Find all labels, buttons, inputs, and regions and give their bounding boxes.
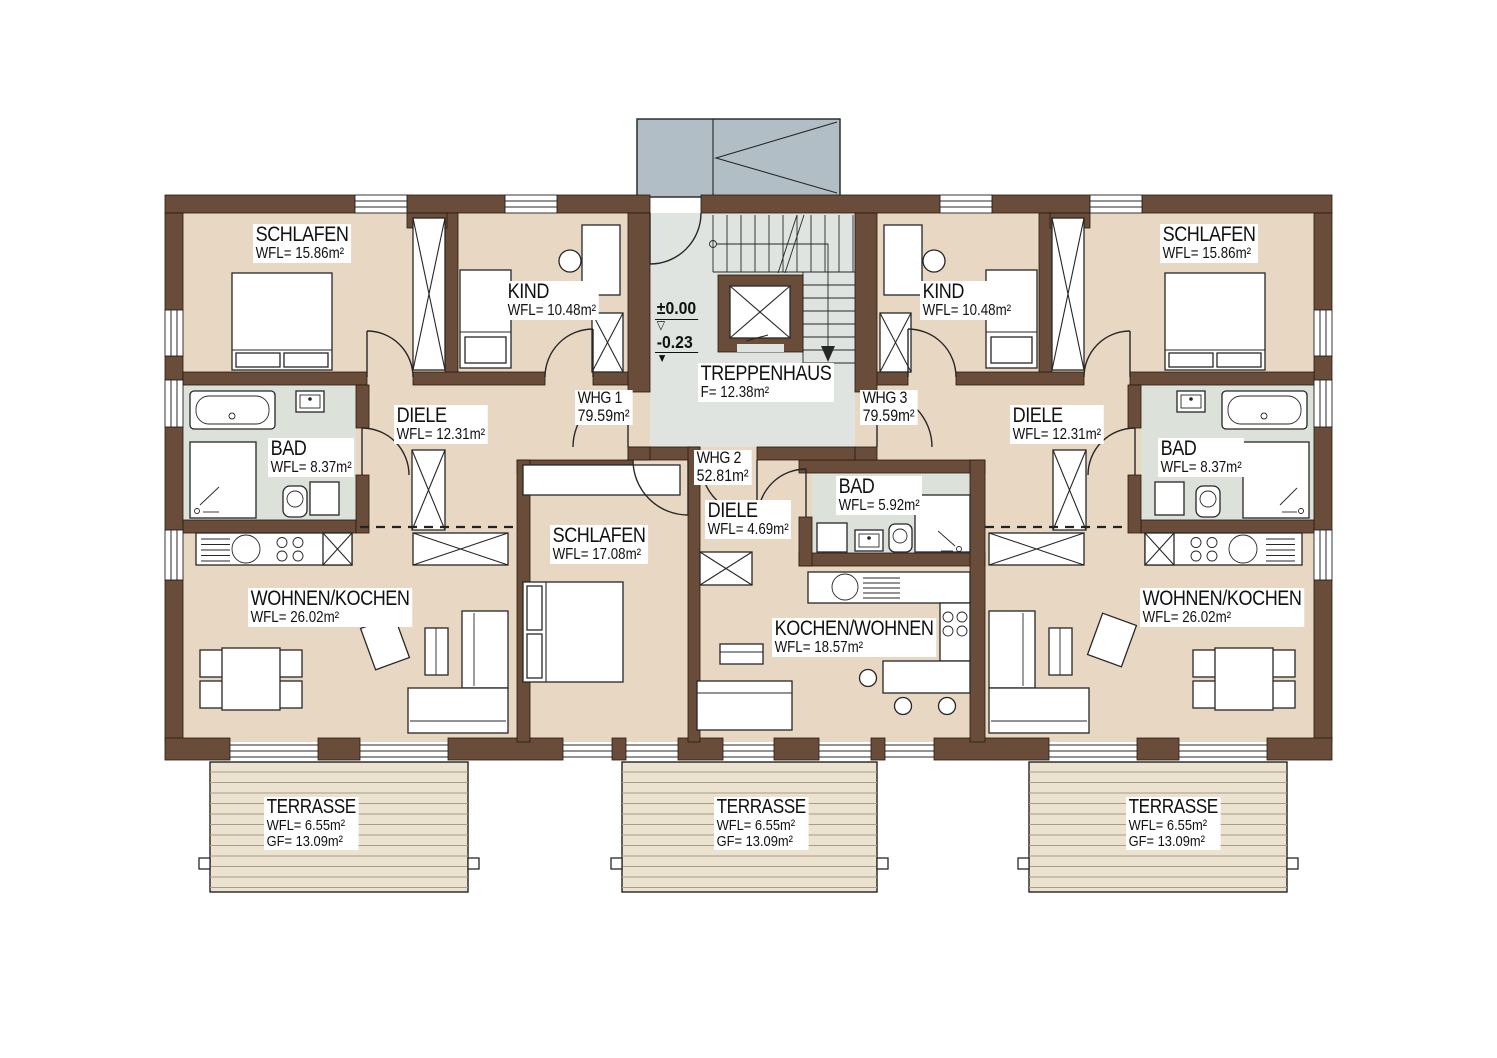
wardrobe — [1053, 450, 1086, 530]
terrace-post — [877, 858, 888, 869]
window — [940, 195, 992, 213]
toilet — [889, 524, 912, 552]
toilet — [1196, 486, 1220, 517]
window — [1314, 380, 1332, 427]
room-label-diele-whg3: DIELEWFL= 12.31m² — [1010, 405, 1104, 444]
stool — [895, 698, 912, 715]
double-bed — [523, 582, 623, 682]
room-label-diele-whg1: DIELEWFL= 12.31m² — [394, 405, 488, 444]
room-label-diele-whg2: DIELEWFL= 4.69m² — [705, 500, 791, 539]
bath-cabinet — [310, 482, 339, 515]
bathtub — [1222, 391, 1307, 429]
sofa — [697, 681, 792, 730]
level-triangle-open-icon: ▽ — [655, 319, 698, 331]
terrace-post — [611, 858, 622, 869]
room-label-bad-whg1: BADWFL= 8.37m² — [268, 438, 354, 477]
room-label-schlafen-whg3: SCHLAFENWFL= 15.86m² — [1160, 224, 1258, 263]
washbasin — [855, 530, 883, 551]
elevator — [718, 275, 803, 352]
room-label-bad-whg3: BADWFL= 8.37m² — [1158, 438, 1244, 477]
apartment-label-whg3: WHG 379.59m² — [860, 390, 917, 425]
tv-board — [1049, 628, 1072, 675]
room-label-bad-whg2: BADWFL= 5.92m² — [836, 476, 922, 515]
desk — [884, 225, 922, 295]
shower — [1243, 442, 1309, 518]
window — [355, 195, 407, 213]
floor-plan: SCHLAFENWFL= 15.86m² KINDWFL= 10.48m² DI… — [0, 0, 1497, 1058]
terrace-post — [468, 858, 479, 869]
double-bed — [232, 273, 332, 370]
child-bed — [460, 270, 511, 368]
apartment-label-whg1: WHG 179.59m² — [575, 390, 632, 425]
washbasin — [1177, 391, 1205, 412]
wardrobe — [523, 465, 680, 495]
room-label-wohnen-whg3: WOHNEN/KOCHENWFL= 26.02m² — [1140, 588, 1304, 627]
double-bed — [1165, 273, 1265, 370]
wardrobe — [592, 313, 623, 372]
wardrobe — [413, 533, 508, 565]
coffee-table — [720, 644, 763, 664]
stool — [939, 698, 956, 715]
terrace-label-left: TERRASSEWFL= 6.55m²GF= 13.09m² — [264, 797, 358, 850]
toilet — [283, 486, 307, 517]
window — [1314, 530, 1332, 580]
window — [165, 380, 183, 427]
terrace-post — [1287, 858, 1298, 869]
tv-board — [425, 628, 448, 675]
dining-table — [222, 648, 280, 710]
wardrobe — [989, 533, 1084, 565]
wardrobe — [412, 450, 445, 530]
room-label-treppenhaus: TREPPENHAUSF= 12.38m² — [698, 363, 834, 402]
room-label-schlafen-whg2: SCHLAFENWFL= 17.08m² — [550, 525, 648, 564]
terrace-label-center: TERRASSEWFL= 6.55m²GF= 13.09m² — [714, 797, 808, 850]
window — [505, 195, 557, 213]
entrance-canopy — [637, 119, 840, 197]
bar-table — [883, 661, 970, 693]
stool — [860, 670, 877, 687]
terrace-post — [1018, 858, 1029, 869]
room-label-schlafen-whg1: SCHLAFENWFL= 15.86m² — [253, 224, 351, 263]
apartment-label-whg2: WHG 252.81m² — [694, 450, 751, 485]
window — [165, 310, 183, 356]
wardrobe — [700, 552, 752, 585]
room-label-kind-whg3: KINDWFL= 10.48m² — [920, 281, 1014, 320]
dining-table — [1215, 648, 1273, 710]
wardrobe — [880, 313, 911, 372]
kitchen-counter — [1145, 533, 1302, 565]
wardrobe — [413, 218, 445, 370]
window — [1314, 310, 1332, 356]
washbasin — [296, 391, 324, 412]
terrace-post — [199, 858, 210, 869]
level-triangle-filled-icon: ▼ — [655, 352, 698, 364]
window — [165, 530, 183, 580]
bath-cabinet — [817, 523, 847, 552]
shower — [915, 495, 970, 552]
shower — [190, 442, 256, 518]
desk-chair — [559, 250, 581, 272]
room-label-wohnen-whg1: WOHNEN/KOCHENWFL= 26.02m² — [248, 588, 412, 627]
bathtub — [190, 391, 275, 429]
bath-cabinet — [1155, 482, 1184, 515]
level-markers: ±0.00▽ -0.23▼ — [655, 300, 698, 367]
terrace-label-right: TERRASSEWFL= 6.55m²GF= 13.09m² — [1126, 797, 1220, 850]
room-label-kochen-whg2: KOCHEN/WOHNENWFL= 18.57m² — [772, 618, 936, 657]
wardrobe — [1052, 218, 1084, 370]
kitchen-counter — [196, 533, 352, 565]
desk-chair — [923, 250, 945, 272]
room-label-kind-whg1: KINDWFL= 10.48m² — [505, 281, 599, 320]
window — [1090, 195, 1142, 213]
